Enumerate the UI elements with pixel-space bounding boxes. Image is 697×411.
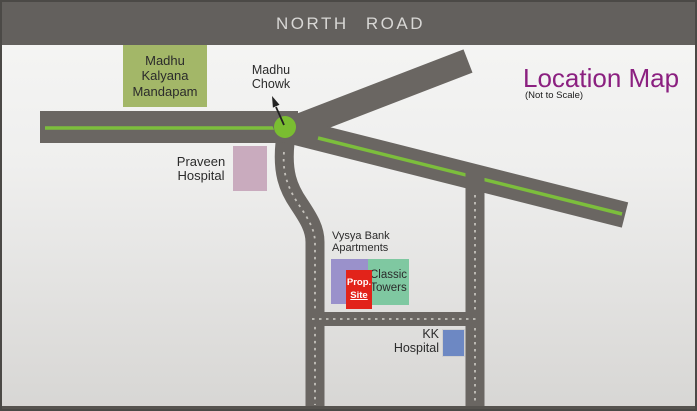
- vysya-bank-apartments-label: Vysya Bank Apartments: [332, 230, 390, 255]
- proposed-site-marker: Prop. Site: [346, 270, 372, 309]
- kk-hospital-building: [442, 329, 465, 357]
- kk-hospital-label: KK Hospital: [380, 328, 439, 356]
- madhu-kalyana-mandapam-label: Madhu Kalyana Mandapam: [132, 53, 197, 99]
- north-road-banner: NORTH ROAD: [2, 2, 697, 45]
- left-vertical-road: [284, 143, 315, 408]
- madhu-chowk-label: Madhu Chowk: [242, 64, 300, 91]
- proposed-site-label-line2: Site: [350, 290, 367, 302]
- praveen-hospital-building: [233, 146, 267, 191]
- madhu-chowk-arrowhead-icon: [272, 96, 280, 108]
- classic-towers-label: Classic Towers: [370, 269, 407, 295]
- madhu-chowk-junction-dot: [274, 116, 296, 138]
- proposed-site-label-line1: Prop.: [347, 277, 371, 289]
- praveen-hospital-label: Praveen Hospital: [170, 155, 232, 182]
- classic-towers-building: Classic Towers: [368, 259, 409, 305]
- bottom-road-strip: [2, 406, 697, 411]
- north-road-label: NORTH ROAD: [276, 14, 425, 34]
- map-subtitle: (Not to Scale): [525, 90, 583, 101]
- madhu-kalyana-mandapam-building: Madhu Kalyana Mandapam: [123, 45, 207, 107]
- location-map: NORTH ROAD Location Map (Not to Scale) M…: [0, 0, 697, 411]
